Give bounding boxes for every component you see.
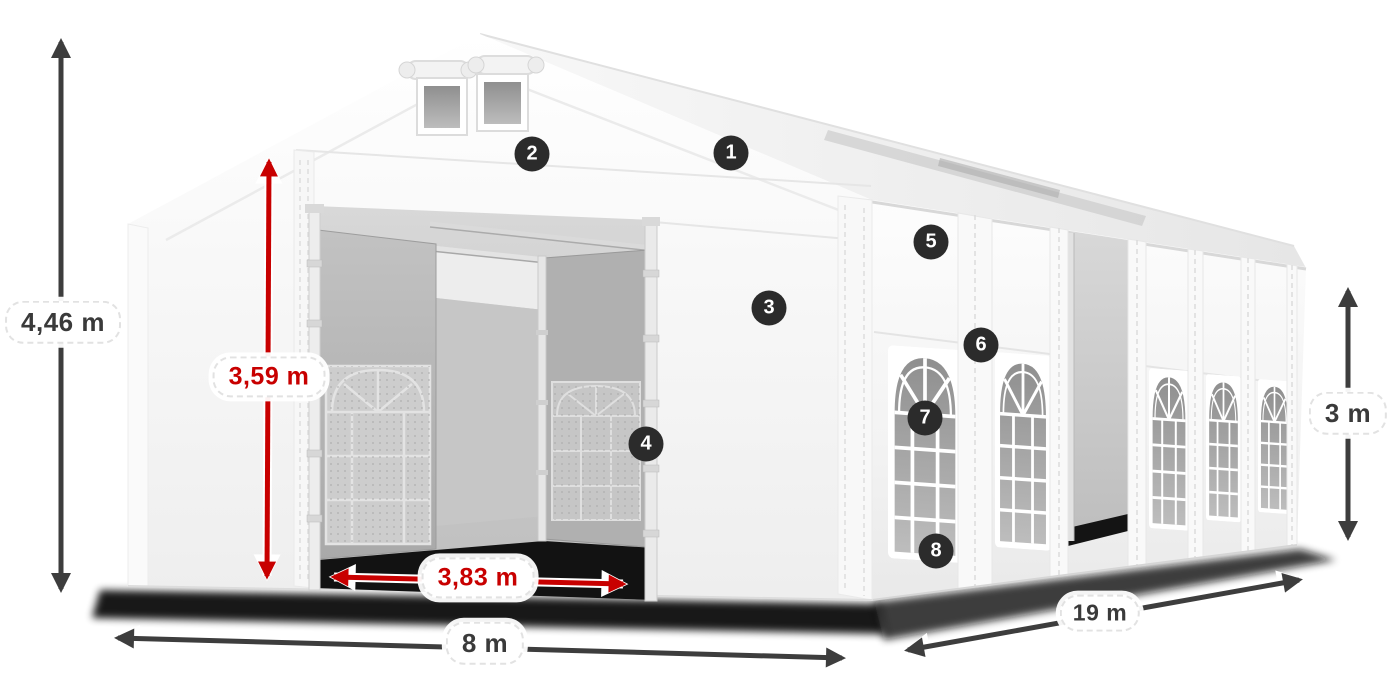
door-curtain-far bbox=[544, 250, 648, 547]
dimension-label-entrance-width: 3,83 m bbox=[422, 557, 535, 598]
dimension-label-total-height: 4,46 m bbox=[5, 301, 121, 344]
callout-3: 3 bbox=[752, 291, 787, 326]
tent-dimension-diagram: 4,46 m 3,59 m 3,83 m 8 m 19 m 3 m 1 2 3 … bbox=[0, 0, 1400, 700]
callout-4: 4 bbox=[629, 427, 664, 462]
callout-5: 5 bbox=[914, 225, 949, 260]
callout-7: 7 bbox=[908, 401, 943, 436]
dimension-label-wall-height: 3 m bbox=[1309, 392, 1387, 435]
side-opening bbox=[1068, 231, 1128, 546]
dimension-label-side-length: 19 m bbox=[1060, 595, 1140, 632]
dimension-label-entrance-height: 3,59 m bbox=[213, 356, 326, 397]
callout-6: 6 bbox=[964, 328, 999, 363]
dimension-label-front-width: 8 m bbox=[446, 622, 524, 665]
callout-2: 2 bbox=[515, 137, 550, 172]
door-curtain-near bbox=[318, 230, 436, 559]
callout-1: 1 bbox=[714, 136, 749, 171]
entrance-opening bbox=[305, 204, 660, 601]
callout-8: 8 bbox=[919, 534, 954, 569]
tent-illustration bbox=[0, 0, 1400, 700]
